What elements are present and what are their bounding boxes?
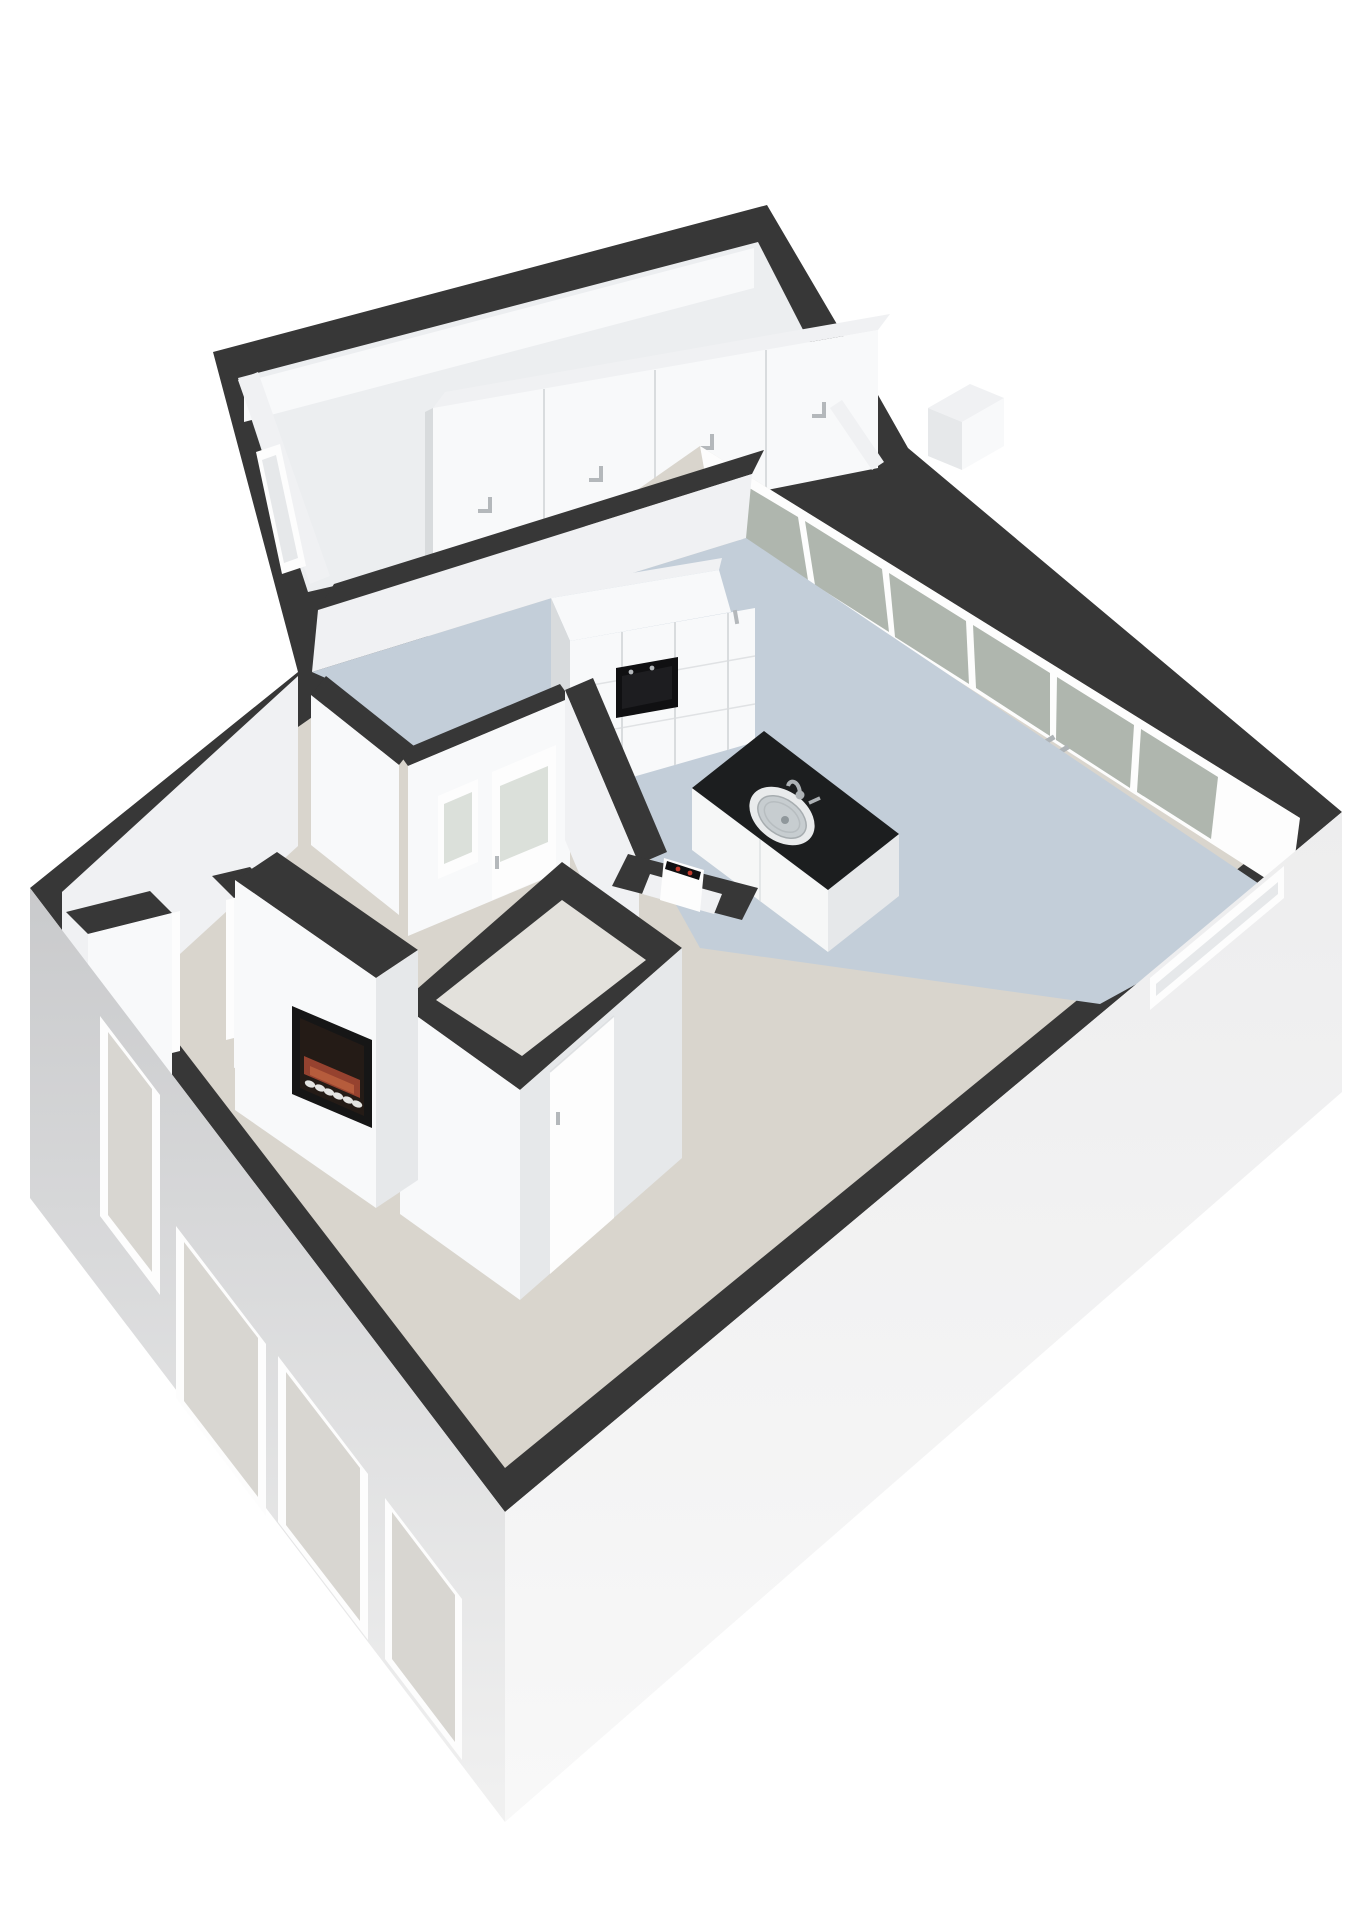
breast-side-face xyxy=(376,950,418,1208)
radiator-indicator xyxy=(676,867,681,872)
doorway-jamb xyxy=(172,911,180,1053)
oven-knob-icon xyxy=(629,670,634,675)
door-handle-icon xyxy=(556,1112,560,1125)
sink-drain-icon xyxy=(781,816,789,824)
storage-box xyxy=(928,384,1004,470)
hall-window-pane xyxy=(444,792,472,864)
doorway-jamb xyxy=(226,898,234,1040)
floorplan-viewer xyxy=(0,0,1358,1920)
wardrobe-side xyxy=(425,408,433,562)
oven-knob-icon xyxy=(650,666,655,671)
radiator-indicator xyxy=(688,871,693,876)
door-handle-icon xyxy=(495,856,499,869)
floorplan-3d-canvas[interactable] xyxy=(0,0,1358,1920)
